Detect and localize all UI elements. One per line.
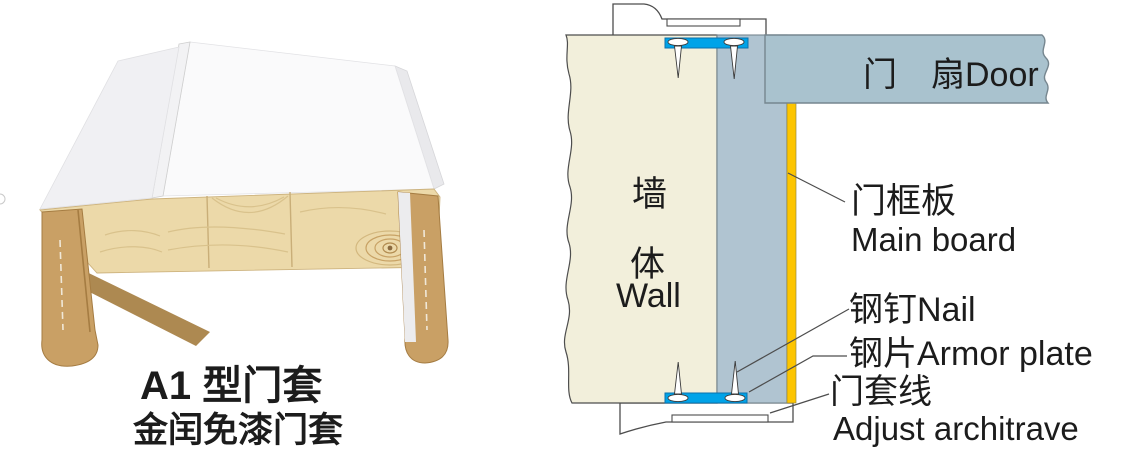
frame-edge-strip [787,103,796,403]
wall-section [564,35,717,403]
main-canvas: A1 型门套 金闰免漆门套 [0,0,1128,468]
main-board-label-en: Main board [851,221,1016,258]
top-architrave-ridge [667,19,740,26]
photo-seam-curl [0,194,5,204]
door-leaf-label: 门 扇Door [863,56,1039,94]
photo-top-surface [163,42,434,196]
leader-main-board [788,173,845,202]
architrave-label-cn: 门套线 [830,373,932,411]
door-frame-photo [0,42,448,366]
bottom-architrave-ridge [672,415,768,422]
wall-label-en: Wall [616,277,681,315]
product-caption-line1: A1 型门套 [140,364,322,408]
nail-label: 钢钉Nail [849,291,976,329]
main-board-label-cn: 门框板 [851,182,956,221]
wall-label-cn-1: 墙 [632,175,667,214]
architrave-label-en: Adjust architrave [833,410,1079,447]
installation-diagram: 墙 体 Wall 门 扇Door 门框板 Main board 钢钉Nail 钢… [564,4,1092,447]
product-caption-line2: 金闰免漆门套 [132,410,343,450]
door-frame-sheet: A1 型门套 金闰免漆门套 [0,0,1128,468]
armor-plate-label: 钢片Armor plate [849,335,1093,373]
